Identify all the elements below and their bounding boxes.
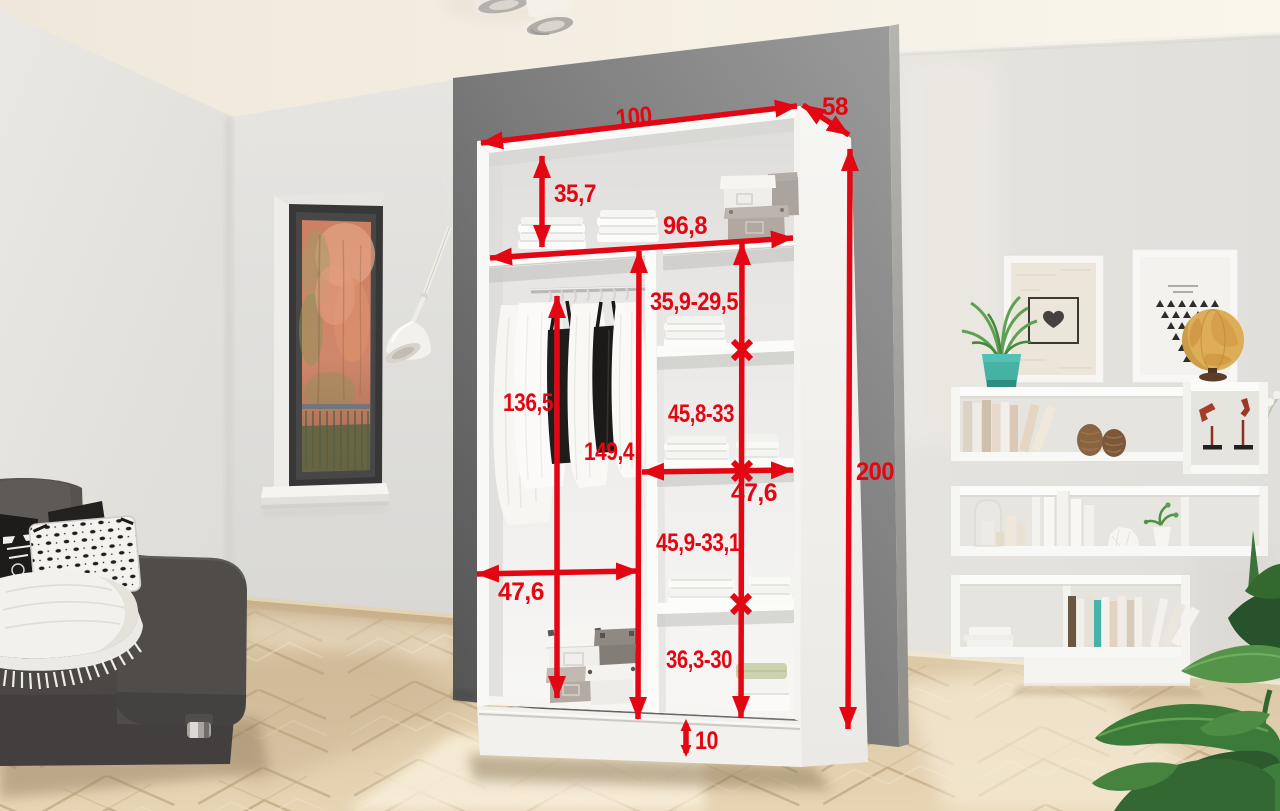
svg-text:45,9-33,1: 45,9-33,1: [656, 529, 740, 557]
svg-text:58: 58: [822, 93, 849, 121]
svg-text:149,4: 149,4: [584, 438, 634, 466]
svg-text:36,3-30: 36,3-30: [666, 646, 732, 674]
svg-text:47,6: 47,6: [731, 479, 777, 507]
svg-text:35,7: 35,7: [554, 180, 596, 208]
svg-text:96,8: 96,8: [663, 212, 708, 240]
svg-text:100: 100: [614, 101, 653, 133]
svg-text:45,8-33: 45,8-33: [668, 400, 734, 428]
svg-text:47,6: 47,6: [498, 578, 544, 606]
svg-text:35,9-29,5: 35,9-29,5: [650, 288, 739, 316]
svg-text:200: 200: [856, 458, 894, 486]
svg-text:136,5: 136,5: [503, 389, 553, 417]
svg-text:10: 10: [695, 727, 718, 755]
